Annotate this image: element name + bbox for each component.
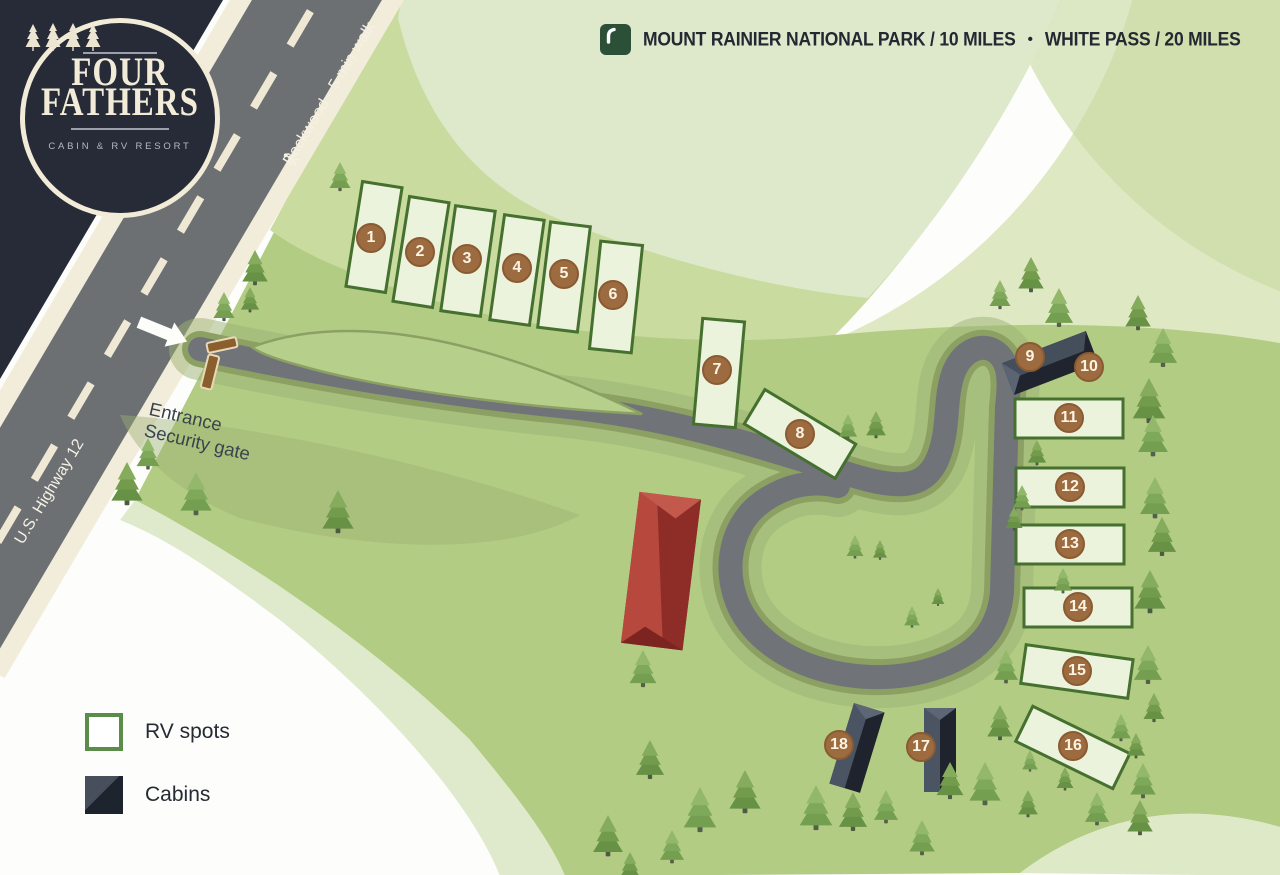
spot-badge-17: 17 (906, 732, 936, 762)
spot-badge-9: 9 (1015, 342, 1045, 372)
spot-badge-5: 5 (549, 259, 579, 289)
spot-badge-18: 18 (824, 730, 854, 760)
spot-badge-1: 1 (356, 223, 386, 253)
destination-white-pass: WHITE PASS / 20 MILES (1045, 28, 1241, 51)
logo-divider-bottom (71, 128, 169, 130)
logo-subtitle: CABIN & RV RESORT (48, 141, 191, 152)
legend-row-rv: RV spots (85, 713, 230, 751)
map-legend: RV spots Cabins (85, 713, 230, 839)
spot-badge-12: 12 (1055, 472, 1085, 502)
spot-badge-6: 6 (598, 280, 628, 310)
logo-pines-icon (25, 23, 105, 51)
resort-logo: FOUR FATHERS CABIN & RV RESORT (20, 18, 220, 218)
spot-badge-13: 13 (1055, 529, 1085, 559)
distance-header: MOUNT RAINIER NATIONAL PARK / 10 MILES •… (600, 24, 1241, 55)
cabin-swatch (85, 776, 123, 814)
rv-spot-swatch (85, 713, 123, 751)
spot-badge-10: 10 (1074, 352, 1104, 382)
destination-mount-rainier: MOUNT RAINIER NATIONAL PARK / 10 MILES (643, 28, 1016, 51)
spot-badge-3: 3 (452, 244, 482, 274)
spot-badge-15: 15 (1062, 656, 1092, 686)
resort-map: FOUR FATHERS CABIN & RV RESORT MOUNT RAI… (0, 0, 1280, 875)
turn-arrow-icon (600, 24, 631, 55)
logo-title-line2: FATHERS (41, 85, 199, 122)
legend-row-cabins: Cabins (85, 776, 230, 814)
spot-badge-8: 8 (785, 419, 815, 449)
rv-spots-label: RV spots (145, 720, 230, 744)
spot-badge-16: 16 (1058, 731, 1088, 761)
spot-badge-14: 14 (1063, 592, 1093, 622)
spot-badge-2: 2 (405, 237, 435, 267)
spot-badge-4: 4 (502, 253, 532, 283)
spot-badge-11: 11 (1054, 403, 1084, 433)
spot-badge-7: 7 (702, 355, 732, 385)
header-bullet: • (1028, 31, 1033, 48)
cabins-label: Cabins (145, 783, 210, 807)
